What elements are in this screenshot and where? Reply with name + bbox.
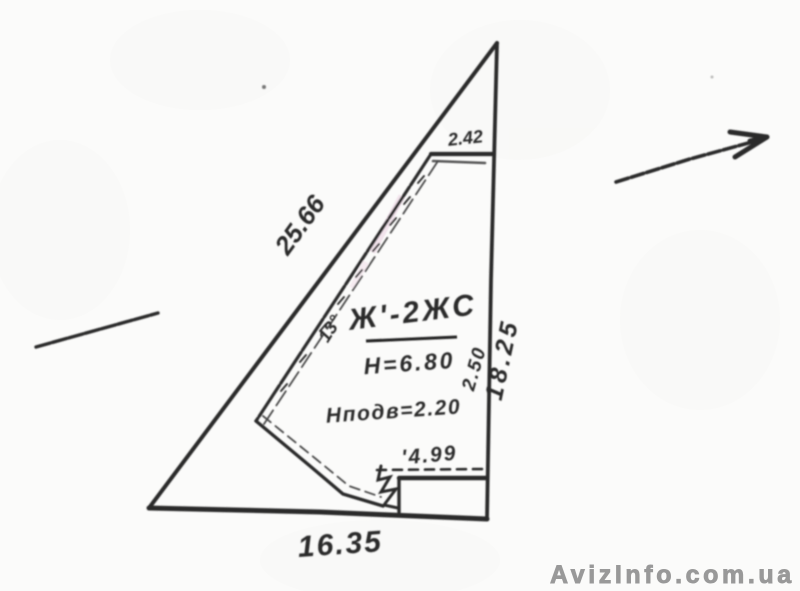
svg-text:2.42: 2.42 [446,126,484,150]
svg-text:AvizInfo.com.ua: AvizInfo.com.ua [550,561,795,589]
svg-text:'4.99: '4.99 [401,442,459,470]
svg-text:16.35: 16.35 [297,525,384,564]
